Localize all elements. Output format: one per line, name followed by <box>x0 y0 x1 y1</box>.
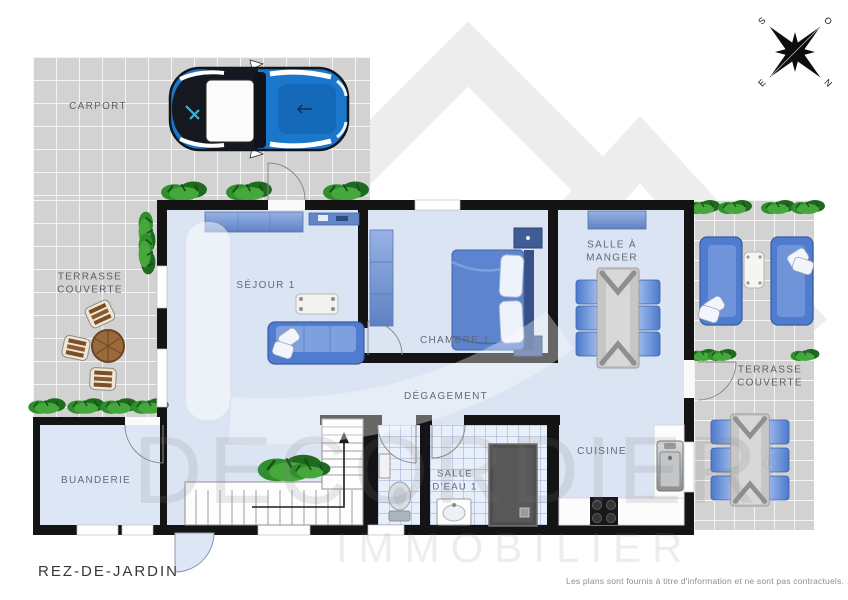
terrasse-left-label-line2: COUVERTE <box>57 284 123 295</box>
plan-title: REZ-DE-JARDIN <box>38 563 179 580</box>
chambre-label: CHAMBRE 1 <box>420 335 490 348</box>
wardrobe <box>370 230 393 326</box>
terrasse-right-label-line2: COUVERTE <box>737 377 803 388</box>
carport-label: CARPORT <box>69 101 127 114</box>
outdoor-sofa <box>771 237 815 325</box>
salle-deau-label: SALLE D'EAU 1 <box>432 469 477 494</box>
sejour-label: SÉJOUR 1 <box>236 280 295 293</box>
terrasse-right-label: TERRASSE COUVERTE <box>737 365 803 390</box>
terrasse-left-label-line1: TERRASSE <box>58 272 122 283</box>
terrace-left-table-set <box>61 299 124 391</box>
cuisine-label: CUISINE <box>577 446 627 459</box>
car <box>170 60 348 158</box>
salle-a-manger-label-line1: SALLE À <box>587 240 637 251</box>
disclaimer-text: Les plans sont fournis à titre d'informa… <box>566 576 844 586</box>
salle-a-manger-label: SALLE À MANGER <box>586 240 638 265</box>
compass-east-label: E <box>756 77 767 88</box>
dining-room-furniture <box>576 211 660 368</box>
salle-deau-label-line1: SALLE <box>437 469 473 480</box>
brand-watermark-line2: IMMOBILIER <box>336 524 693 572</box>
registered-mark: ® <box>763 450 785 475</box>
compass-west-label: O <box>822 15 834 27</box>
sofa <box>268 322 364 364</box>
salle-a-manger-label-line2: MANGER <box>586 252 638 263</box>
compass-rose: S O E N <box>756 15 834 89</box>
salle-deau-label-line2: D'EAU 1 <box>432 481 477 492</box>
buanderie-label: BUANDERIE <box>61 475 131 488</box>
compass-north-label: N <box>822 77 834 89</box>
compass-south-label: S <box>756 15 767 26</box>
outdoor-sofa <box>697 237 742 325</box>
entrance-door <box>175 533 214 572</box>
degagement-label: DÉGAGEMENT <box>404 391 488 404</box>
dining-table <box>597 268 639 368</box>
terrasse-left-label: TERRASSE COUVERTE <box>57 272 123 297</box>
coffee-table <box>296 294 338 314</box>
sideboard <box>588 211 646 229</box>
terrasse-right-label-line1: TERRASSE <box>738 365 802 376</box>
console <box>309 213 359 225</box>
floorplan-canvas: S O E N DECORDIER® IMMOBILIER CARPORT TE… <box>0 0 848 600</box>
